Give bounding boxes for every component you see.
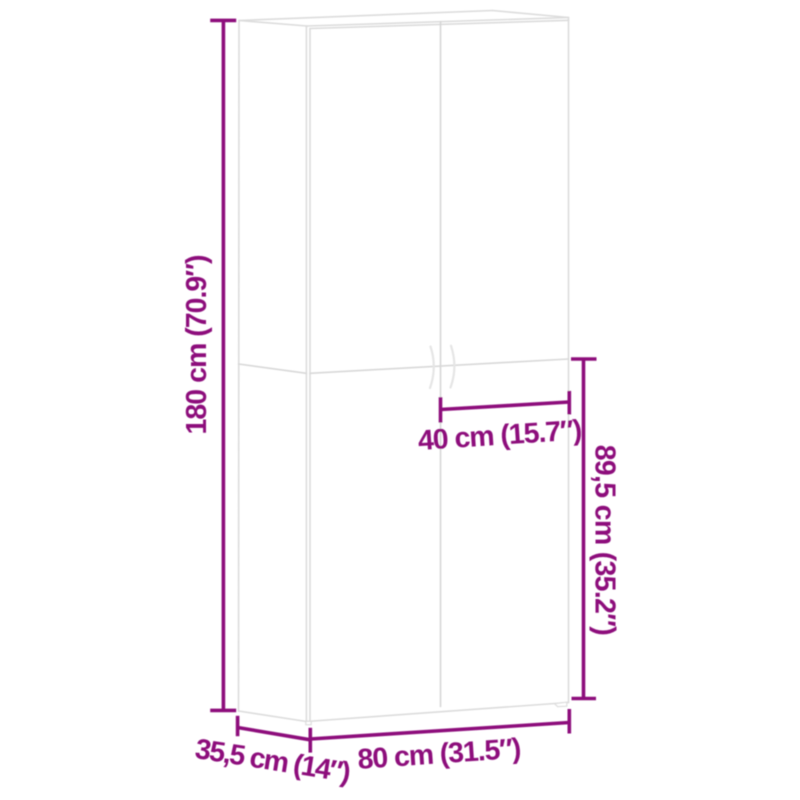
svg-text:89,5 cm (35.2″): 89,5 cm (35.2″): [589, 445, 621, 636]
svg-text:180 cm (70.9″): 180 cm (70.9″): [181, 255, 213, 435]
